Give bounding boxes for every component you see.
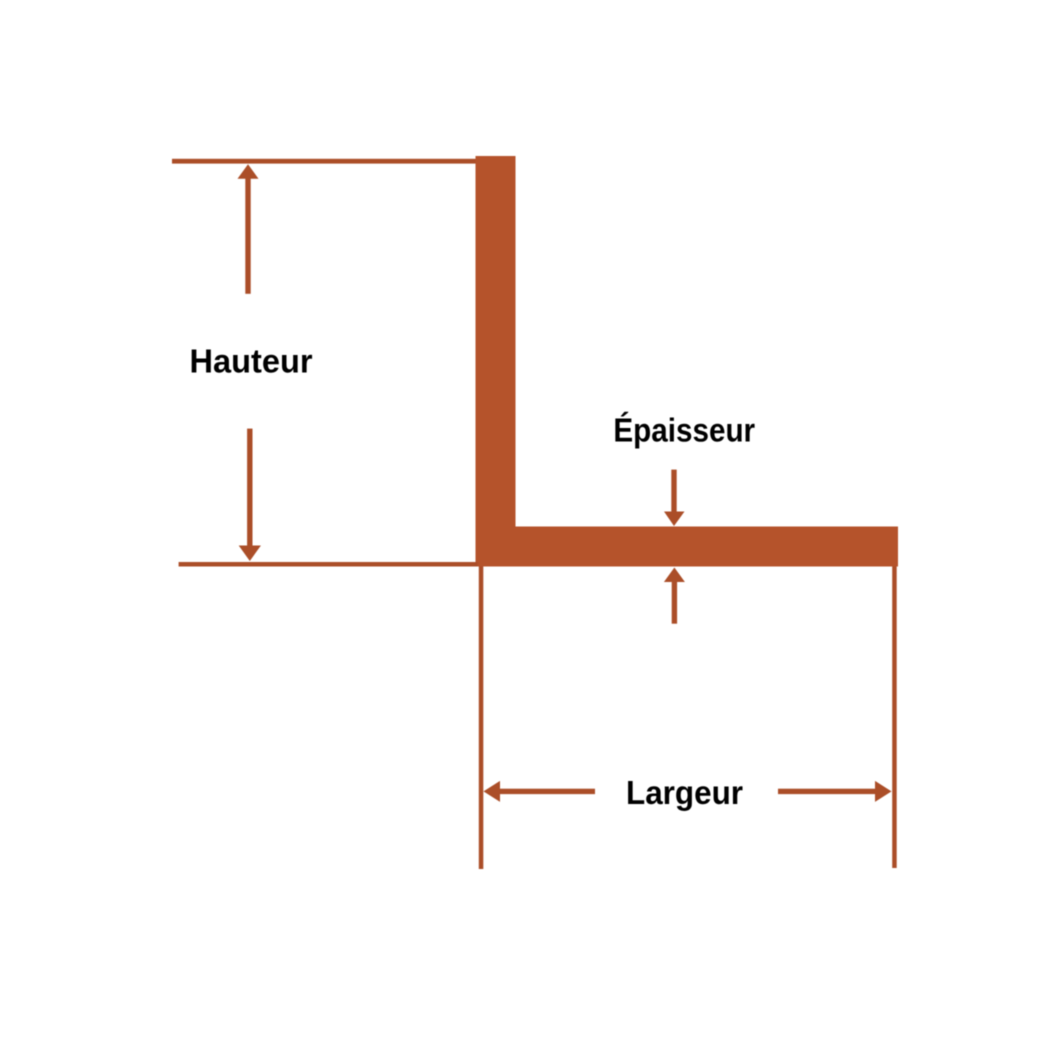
svg-text:Hauteur: Hauteur (190, 343, 313, 380)
svg-text:Épaisseur: Épaisseur (613, 412, 755, 450)
svg-text:Largeur: Largeur (626, 775, 743, 812)
